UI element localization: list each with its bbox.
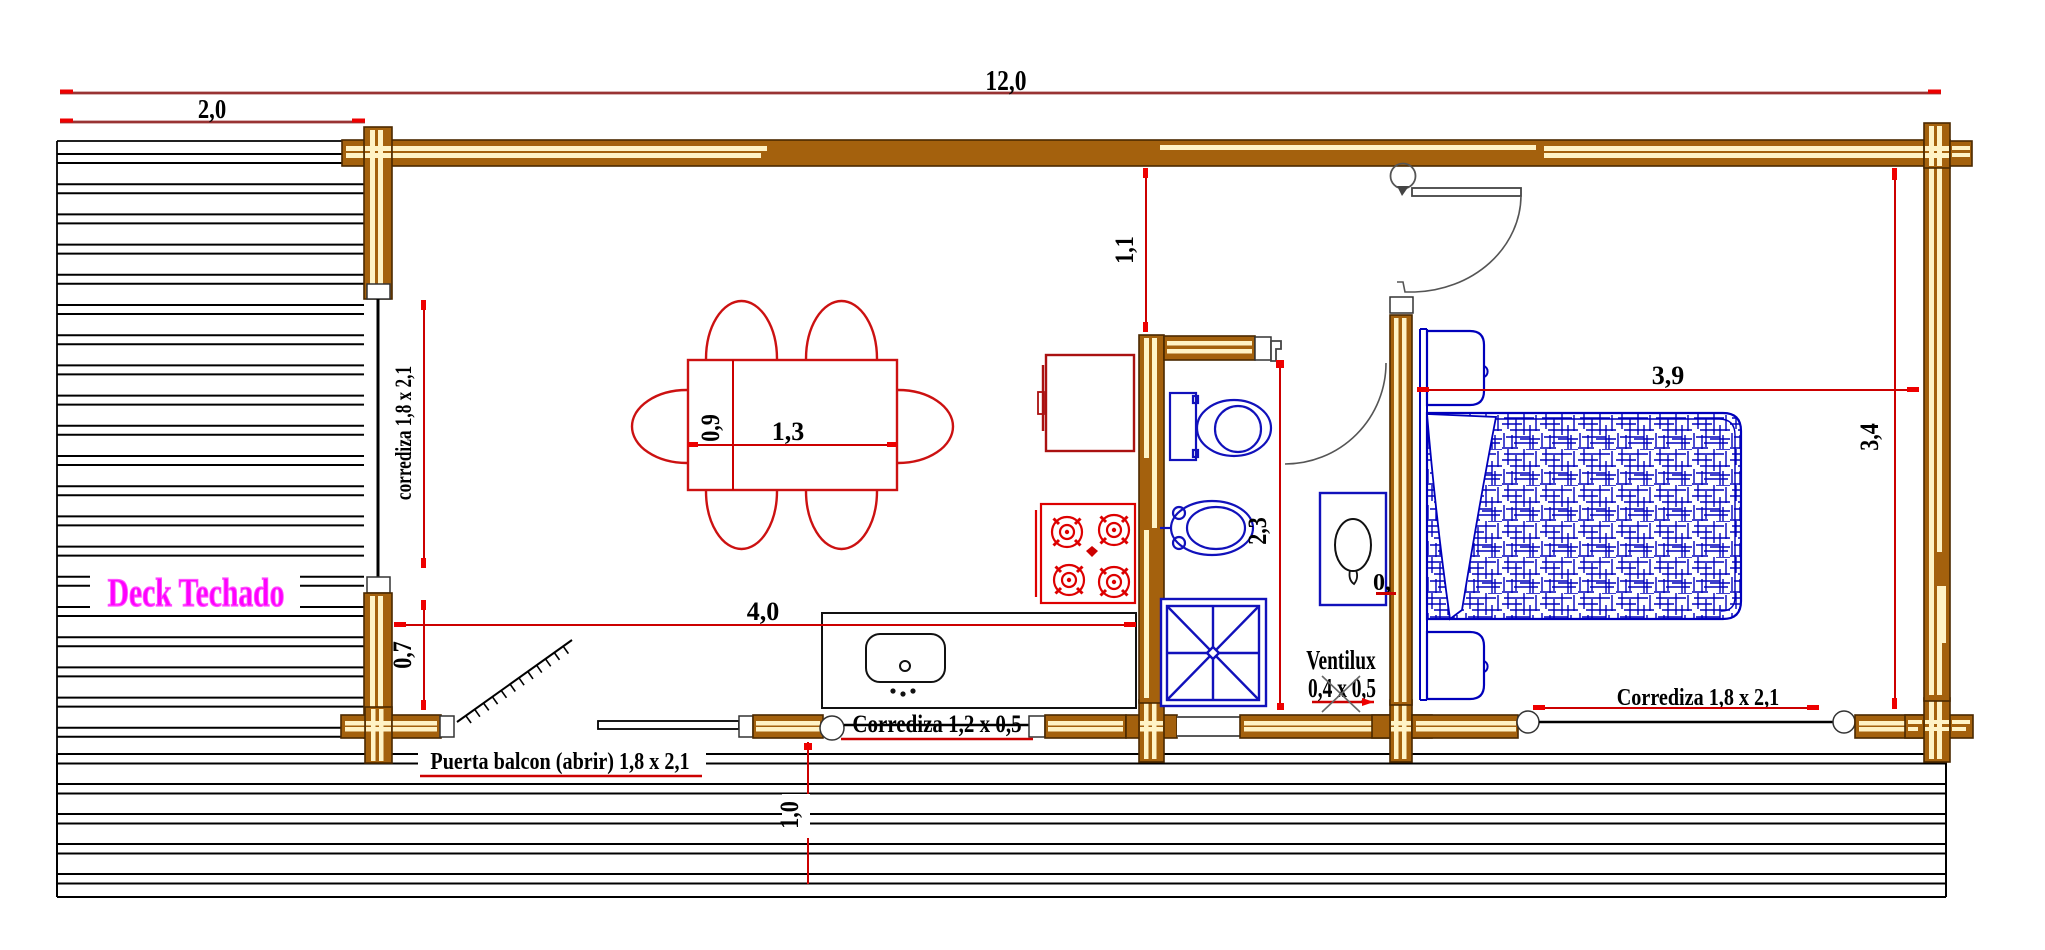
svg-text:0,7: 0,7 [389,641,417,669]
svg-text:Corrediza 1,8 x 2,1: Corrediza 1,8 x 2,1 [1617,683,1780,710]
svg-text:0,9: 0,9 [697,414,725,442]
svg-text:3,4: 3,4 [1856,423,1884,451]
svg-text:Deck Techado: Deck Techado [108,571,285,615]
svg-text:4,0: 4,0 [747,597,780,626]
svg-text:1,0: 1,0 [776,801,804,829]
svg-text:Puerta balcon (abrir) 1,8 x 2,: Puerta balcon (abrir) 1,8 x 2,1 [430,747,689,774]
svg-text:2,0: 2,0 [198,95,226,124]
svg-text:Ventilux: Ventilux [1306,646,1376,676]
svg-text:2,3: 2,3 [1244,517,1272,545]
svg-text:Corrediza 1,2 x 0,5: Corrediza 1,2 x 0,5 [852,709,1021,737]
svg-text:1,1: 1,1 [1111,236,1139,264]
svg-text:1,3: 1,3 [772,417,805,446]
svg-text:corrediza 1,8 x 2,1: corrediza 1,8 x 2,1 [392,366,417,500]
svg-text:12,0: 12,0 [985,65,1026,96]
svg-text:3,9: 3,9 [1652,361,1685,390]
